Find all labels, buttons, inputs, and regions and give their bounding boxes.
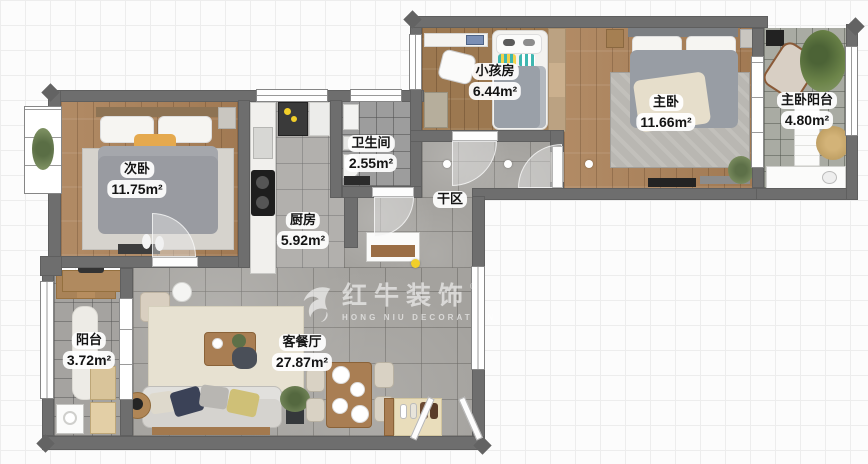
- floor-lamp: [172, 282, 192, 302]
- mbalc-black-box: [766, 30, 784, 46]
- balcony-window: [40, 281, 54, 399]
- master-balcony-glass-door: [751, 56, 764, 168]
- room-area: 11.66m²: [636, 113, 695, 131]
- room-area: 5.92m²: [277, 231, 329, 249]
- room-name: 阳台: [72, 332, 106, 349]
- slipper: [142, 234, 151, 249]
- bath-sink: [343, 104, 359, 130]
- burner: [256, 176, 269, 189]
- plant-large: [800, 30, 846, 92]
- label-second-bedroom: 次卧 11.75m²: [107, 160, 166, 199]
- sofa-bench: [152, 427, 270, 435]
- bathroom-window: [350, 89, 402, 102]
- marker-yellow: [411, 259, 420, 268]
- label-master-balcony: 主卧阳台 4.80m²: [777, 91, 837, 130]
- downlight: [443, 160, 451, 168]
- desk-nook: [62, 270, 124, 292]
- room-name: 主卧: [649, 94, 683, 111]
- nightstand: [218, 107, 236, 129]
- flowers-yellow: [284, 108, 291, 115]
- room-name: 厨房: [286, 212, 320, 229]
- wall-second-bedroom-right: [238, 100, 250, 268]
- shoes: [400, 404, 407, 419]
- bath-mat: [344, 176, 370, 185]
- kids-door-leaf: [452, 131, 498, 141]
- dining-chair: [306, 398, 325, 422]
- master-door-leaf: [552, 146, 563, 188]
- kids-books: [466, 35, 484, 45]
- room-area: 2.55m²: [345, 154, 397, 172]
- flowers-yellow: [291, 116, 297, 122]
- bay-window-plant: [32, 128, 54, 170]
- dining-chair: [374, 362, 394, 388]
- wall-bottom: [42, 436, 485, 450]
- nightstand: [606, 29, 624, 48]
- wall-second-bedroom-bottom: [48, 256, 250, 268]
- hall-vanity-shelf: [371, 245, 415, 257]
- laundry-basket: [90, 366, 116, 400]
- room-area: 3.72m²: [63, 351, 115, 369]
- label-master-bedroom: 主卧 11.66m²: [636, 93, 695, 132]
- label-kids-room: 小孩房 6.44m²: [469, 62, 521, 101]
- label-kitchen: 厨房 5.92m²: [277, 211, 329, 250]
- registered-mark: ®: [470, 282, 483, 291]
- room-name: 客餐厅: [278, 334, 325, 351]
- entry-shoe-cabinet: [384, 398, 394, 436]
- burner: [256, 196, 269, 209]
- second-bedroom-door-leaf: [152, 257, 198, 267]
- label-dry-area: 干区: [433, 190, 467, 208]
- wall-kitchen-bath: [330, 100, 342, 198]
- label-balcony: 阳台 3.72m²: [63, 331, 115, 370]
- wall-kitchen-stub: [344, 196, 358, 248]
- living-balcony-glass-door: [119, 298, 133, 400]
- kitchen-sink: [253, 127, 273, 159]
- shoes: [410, 403, 417, 419]
- label-bathroom: 卫生间 2.55m²: [345, 134, 397, 173]
- watermark-brand: 红牛装饰®: [342, 283, 496, 311]
- kids-window: [409, 34, 422, 90]
- watermark: 红牛装饰® HONG NIU DECORATION: [298, 283, 496, 325]
- sofa-pillow-gray: [199, 384, 230, 410]
- laundry-basket: [90, 402, 116, 434]
- room-name: 主卧阳台: [777, 92, 837, 109]
- tableware: [212, 338, 223, 349]
- room-area: 11.75m²: [107, 180, 166, 198]
- watermark-text: 红牛装饰® HONG NIU DECORATION: [342, 283, 496, 322]
- wall-mbalc-bottom: [756, 188, 858, 200]
- kitchen-cabinet: [309, 102, 330, 136]
- room-area: 4.80m²: [781, 111, 833, 129]
- mbalc-sink: [822, 171, 837, 184]
- lounge-chair-dark: [232, 347, 257, 369]
- bull-logo-icon: [298, 283, 336, 325]
- floor-plan: 红牛装饰® HONG NIU DECORATION 次卧 11.75m² 厨房 …: [0, 0, 868, 464]
- bathroom-door-leaf: [372, 187, 414, 197]
- room-area: 27.87m²: [272, 353, 332, 371]
- downlight: [504, 160, 512, 168]
- kids-sunglasses: [523, 39, 535, 46]
- kids-bench: [424, 92, 448, 128]
- room-name: 卫生间: [347, 135, 394, 152]
- room-name: 小孩房: [471, 63, 518, 80]
- watermark-brand-en: HONG NIU DECORATION: [342, 313, 496, 322]
- wall-corner-patch: [40, 256, 62, 276]
- dining-plate: [332, 398, 348, 414]
- wall-hall-bottom: [472, 188, 762, 200]
- wardrobe: [548, 28, 566, 132]
- kids-sunglasses: [503, 39, 515, 46]
- dining-plate: [332, 366, 350, 384]
- label-living-dining: 客餐厅 27.87m²: [272, 333, 332, 372]
- room-name: 次卧: [120, 161, 154, 178]
- room-area: 6.44m²: [469, 82, 521, 100]
- kitchen-window: [256, 89, 328, 102]
- downlight: [585, 160, 593, 168]
- room-name: 干区: [433, 191, 467, 208]
- mbalc-window: [845, 46, 858, 136]
- table-plant: [232, 334, 246, 348]
- washer-door: [63, 411, 77, 425]
- dining-plate: [351, 405, 369, 423]
- tv-console: [648, 178, 696, 187]
- wall-rightwing-top: [410, 16, 768, 28]
- dining-plate: [350, 382, 365, 397]
